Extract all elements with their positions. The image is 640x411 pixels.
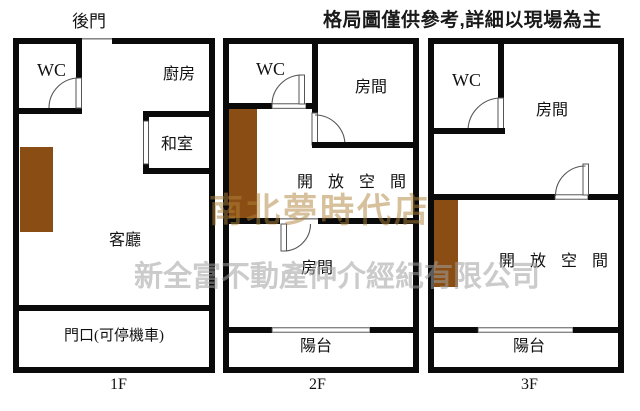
- wall: [223, 38, 419, 44]
- wall: [143, 168, 215, 174]
- window-icon: [272, 328, 370, 332]
- watermark-company-name: 新全富不動產仲介經紀有限公司: [134, 253, 540, 295]
- wall: [312, 142, 419, 148]
- wall: [143, 163, 149, 174]
- back-door-opening: [82, 38, 112, 40]
- wall: [223, 103, 272, 109]
- wall: [13, 367, 215, 373]
- stairs-icon: [20, 147, 53, 232]
- door-swing-icon: [272, 75, 302, 105]
- door-leaf-icon: [299, 75, 305, 104]
- disclaimer-text: 格局圖僅供參考,詳細以現場為主: [323, 5, 602, 32]
- wall: [13, 108, 82, 114]
- wall: [428, 128, 505, 134]
- floor-label-3f: 3F: [521, 377, 538, 394]
- wall: [588, 194, 624, 200]
- wall: [13, 38, 82, 44]
- wall: [312, 38, 318, 113]
- wall: [618, 38, 624, 373]
- wall: [573, 327, 624, 333]
- wall: [223, 327, 272, 333]
- wall: [306, 103, 318, 109]
- room-label-kitchen: 廚房: [163, 67, 195, 84]
- wall: [13, 305, 215, 311]
- door-swing-icon: [468, 98, 501, 131]
- wall: [143, 111, 215, 117]
- room-label-wc-1f: WC: [37, 61, 66, 80]
- wall: [370, 327, 419, 333]
- door-leaf-icon: [498, 98, 504, 131]
- room-label-balcony-2f: 陽台: [300, 339, 332, 356]
- room-label-tatami: 和室: [161, 137, 193, 154]
- room-label-wc-2f: WC: [256, 60, 285, 79]
- wall: [498, 38, 504, 98]
- room-label-living: 客廳: [109, 233, 141, 250]
- wall: [223, 367, 419, 373]
- wall: [428, 327, 478, 333]
- wall: [428, 194, 555, 200]
- window-icon: [144, 121, 149, 164]
- watermark-store-name: 南北夢時代店: [209, 183, 431, 232]
- room-label-balcony-3f: 陽台: [513, 339, 545, 356]
- door-swing-icon: [49, 78, 79, 108]
- back-door-label: 後門: [72, 13, 106, 31]
- wall: [13, 38, 19, 373]
- floor-label-2f: 2F: [309, 377, 326, 394]
- door-leaf-icon: [312, 113, 318, 145]
- door-leaf-icon: [583, 164, 589, 195]
- room-label-entrance: 門口(可停機車): [64, 329, 164, 345]
- window-icon: [478, 328, 573, 332]
- room-label-room-3f: 房間: [536, 103, 568, 120]
- wall: [428, 367, 624, 373]
- door-swing-icon: [556, 166, 586, 196]
- wall: [143, 111, 149, 122]
- room-label-room-upper-2f: 房間: [355, 80, 387, 97]
- floor-plan-image: 格局圖僅供參考,詳細以現場為主 後門 WC 廚房 和室 客廳 門口(可停機車) …: [0, 0, 640, 411]
- wall: [112, 38, 215, 44]
- door-leaf-icon: [76, 78, 82, 108]
- floor-1f-plan: [13, 38, 215, 373]
- wall: [428, 38, 624, 44]
- floor-label-1f: 1F: [110, 377, 127, 394]
- room-label-wc-3f: WC: [452, 71, 481, 90]
- door-swing-icon: [315, 115, 345, 145]
- wall: [76, 38, 82, 78]
